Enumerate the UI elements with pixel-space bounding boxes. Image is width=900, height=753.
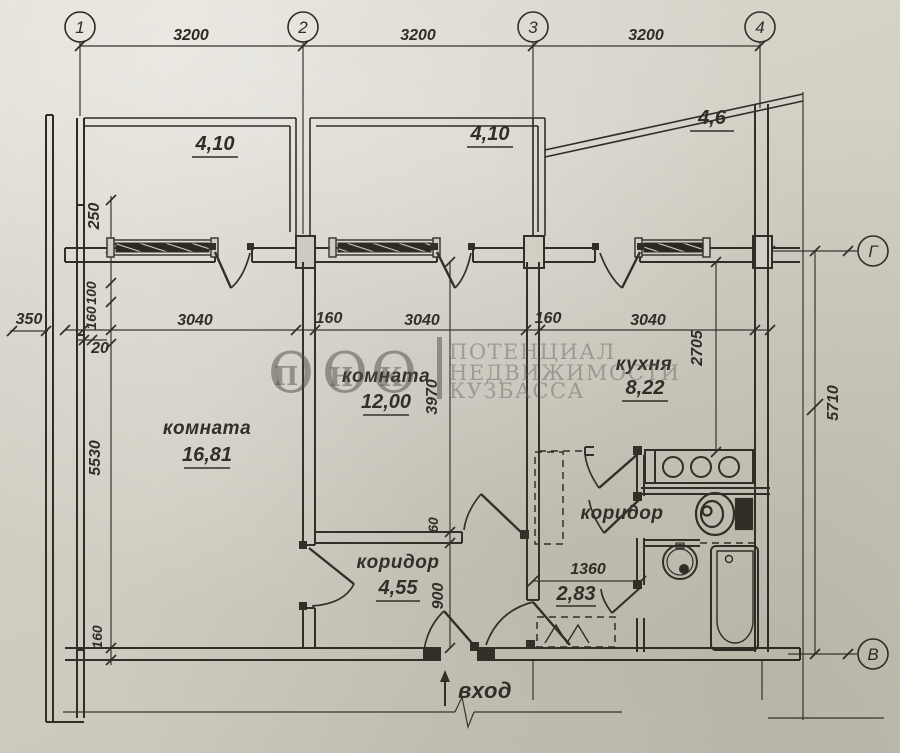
balconies (84, 94, 803, 236)
room1-area: 16,81 (182, 444, 232, 466)
dim-60: 60 (425, 517, 441, 533)
walls (46, 104, 800, 722)
window-room2 (329, 238, 440, 257)
dim-100: 100 (83, 281, 99, 305)
balcony2-area: 4,10 (470, 123, 510, 145)
dim-3200-3: 3200 (628, 27, 664, 44)
window-room1 (107, 238, 218, 257)
sink (663, 543, 697, 579)
axis-label-v: В (867, 645, 878, 664)
axis-label-g: Г (868, 242, 879, 261)
dim-5710: 5710 (825, 385, 842, 421)
dim-350: 350 (16, 311, 43, 328)
dim-160-2: 160 (535, 310, 562, 327)
dim-3040-1: 3040 (177, 312, 213, 329)
watermark-p: П (274, 362, 299, 392)
watermark-divider (437, 337, 442, 399)
dim-20: 20 (90, 340, 109, 357)
floor-plan-drawing: 1 2 3 4 Г В 3200 3200 3200 3040 160 3040… (0, 0, 900, 753)
entrance-arrow-icon (440, 670, 450, 682)
dim-160-left: 160 (83, 306, 99, 330)
fixtures (645, 450, 758, 650)
stove (645, 450, 753, 483)
dim-3200-2: 3200 (400, 27, 436, 44)
entrance-label: вход (458, 678, 512, 703)
dim-1360: 1360 (570, 561, 606, 578)
dim-2705: 2705 (689, 329, 706, 367)
dim-3040-2: 3040 (404, 312, 440, 329)
dim-3200-1: 3200 (173, 27, 209, 44)
balcony3-area: 4,6 (697, 107, 727, 129)
balcony1-area: 4,10 (195, 133, 235, 155)
window-kitchen (635, 238, 710, 257)
toilet (696, 493, 752, 535)
axis-label-3: 3 (528, 18, 538, 37)
dim-900: 900 (430, 583, 447, 610)
watermark-k: К (379, 363, 403, 393)
hall2-area: 2,83 (556, 583, 596, 605)
axis-label-2: 2 (297, 18, 308, 37)
dim-160-bottom: 160 (89, 625, 105, 649)
room1-name: комната (163, 418, 251, 439)
dim-3040-3: 3040 (630, 312, 666, 329)
watermark-line3: КУЗБАССА (449, 379, 585, 403)
axis-label-1: 1 (75, 18, 84, 37)
dim-250: 250 (86, 203, 103, 231)
watermark-n: Н (329, 363, 354, 393)
windows (107, 238, 710, 257)
floor-plan-photo: 1 2 3 4 Г В 3200 3200 3200 3040 160 3040… (0, 0, 900, 753)
dim-5530: 5530 (87, 440, 104, 476)
entrance: вход (440, 670, 512, 706)
hall1-name: коридор (357, 552, 440, 573)
hall1-area: 4,55 (378, 577, 419, 599)
axis-label-4: 4 (755, 18, 764, 37)
watermark: О О О П Н К ПОТЕНЦИАЛ НЕДВИЖИМОСТИ КУЗБА… (268, 337, 680, 406)
hall2-name: коридор (581, 503, 664, 524)
bathtub (711, 546, 758, 650)
dim-160-1: 160 (316, 310, 343, 327)
